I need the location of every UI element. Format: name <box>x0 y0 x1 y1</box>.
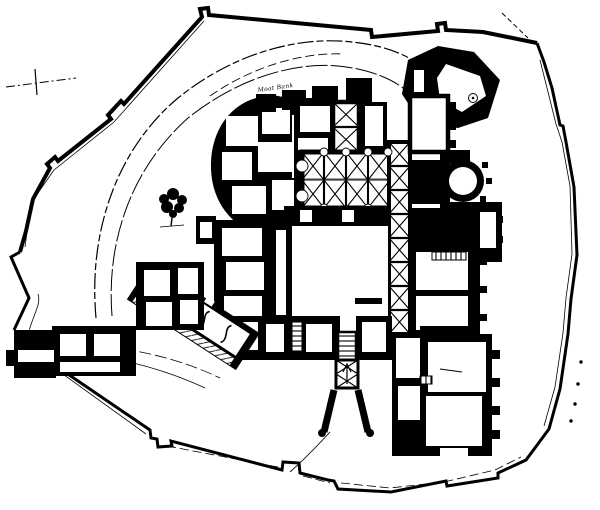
plan-drawing: Moat Bank <box>0 0 600 510</box>
east-vaulted-gallery <box>389 142 410 334</box>
courtyard-step <box>355 298 382 304</box>
north-vault-arm <box>333 102 359 152</box>
west-gatehouse <box>6 326 136 378</box>
hall-vault-bays <box>302 152 390 208</box>
gate-passage <box>18 350 54 362</box>
inner-courtyard <box>288 226 388 318</box>
southeast-block <box>392 326 500 456</box>
gate-stair <box>338 332 356 360</box>
southwest-l-block <box>136 262 204 330</box>
castle-ground-plan: Moat Bank <box>0 0 600 510</box>
stair-flight <box>292 322 302 352</box>
